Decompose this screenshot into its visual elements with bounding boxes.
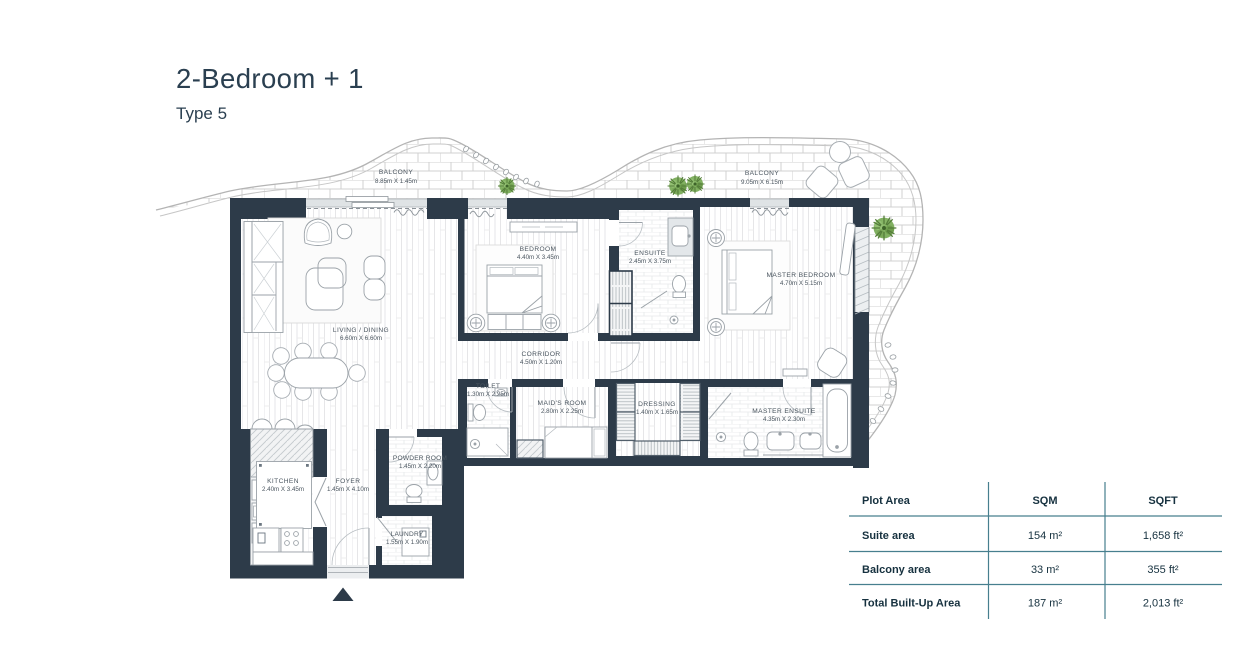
svg-text:BEDROOM: BEDROOM xyxy=(520,246,557,253)
svg-text:1,658 ft²: 1,658 ft² xyxy=(1143,530,1184,542)
svg-text:SQM: SQM xyxy=(1032,495,1057,507)
svg-text:CORRIDOR: CORRIDOR xyxy=(521,351,560,358)
svg-text:POWDER ROOM: POWDER ROOM xyxy=(393,455,447,462)
svg-text:4.35m X 2.30m: 4.35m X 2.30m xyxy=(763,416,805,423)
svg-text:MAID'S ROOM: MAID'S ROOM xyxy=(538,400,587,407)
svg-text:SQFT: SQFT xyxy=(1148,495,1178,507)
svg-text:2.40m X 3.45m: 2.40m X 3.45m xyxy=(262,486,304,493)
svg-text:MASTER ENSUITE: MASTER ENSUITE xyxy=(752,408,816,415)
svg-text:1.45m X 2.20m: 1.45m X 2.20m xyxy=(399,463,441,470)
svg-text:Plot Area: Plot Area xyxy=(862,495,911,507)
svg-text:TOILET: TOILET xyxy=(476,383,500,390)
svg-text:LAUNDRY: LAUNDRY xyxy=(391,531,424,538)
svg-text:Suite area: Suite area xyxy=(862,530,915,542)
svg-text:2-Bedroom + 1: 2-Bedroom + 1 xyxy=(176,63,364,94)
svg-text:ENSUITE: ENSUITE xyxy=(634,250,666,257)
svg-text:1.40m X 1.65m: 1.40m X 1.65m xyxy=(636,409,678,416)
svg-text:LIVING / DINING: LIVING / DINING xyxy=(333,327,389,334)
svg-text:9.05m X 6.15m: 9.05m X 6.15m xyxy=(741,179,783,186)
svg-text:2.80m X 2.25m: 2.80m X 2.25m xyxy=(541,408,583,415)
svg-text:BALCONY: BALCONY xyxy=(379,169,414,176)
svg-text:BALCONY: BALCONY xyxy=(745,170,780,177)
svg-text:FOYER: FOYER xyxy=(336,478,361,485)
svg-text:4.40m X 3.45m: 4.40m X 3.45m xyxy=(517,254,559,261)
svg-text:8.85m X 1.45m: 8.85m X 1.45m xyxy=(375,178,417,185)
svg-text:6.60m X 6.60m: 6.60m X 6.60m xyxy=(340,335,382,342)
svg-text:1.30m X 2.25m: 1.30m X 2.25m xyxy=(467,391,509,398)
svg-text:4.70m X 5.15m: 4.70m X 5.15m xyxy=(780,280,822,287)
svg-text:187 m²: 187 m² xyxy=(1028,598,1063,610)
svg-text:Type 5: Type 5 xyxy=(176,104,227,123)
svg-text:1.55m X 1.90m: 1.55m X 1.90m xyxy=(386,539,428,546)
svg-text:33 m²: 33 m² xyxy=(1031,564,1059,576)
svg-text:Total Built-Up Area: Total Built-Up Area xyxy=(862,598,961,610)
svg-text:Balcony area: Balcony area xyxy=(862,564,931,576)
svg-text:2.45m X 3.75m: 2.45m X 3.75m xyxy=(629,258,671,265)
svg-text:KITCHEN: KITCHEN xyxy=(267,478,299,485)
svg-text:DRESSING: DRESSING xyxy=(638,401,676,408)
svg-text:2,013 ft²: 2,013 ft² xyxy=(1143,598,1184,610)
svg-text:154 m²: 154 m² xyxy=(1028,530,1063,542)
svg-text:355 ft²: 355 ft² xyxy=(1147,564,1179,576)
svg-text:MASTER BEDROOM: MASTER BEDROOM xyxy=(767,272,836,279)
svg-text:4.50m X 1.20m: 4.50m X 1.20m xyxy=(520,359,562,366)
svg-text:1.45m X 4.10m: 1.45m X 4.10m xyxy=(327,486,369,493)
